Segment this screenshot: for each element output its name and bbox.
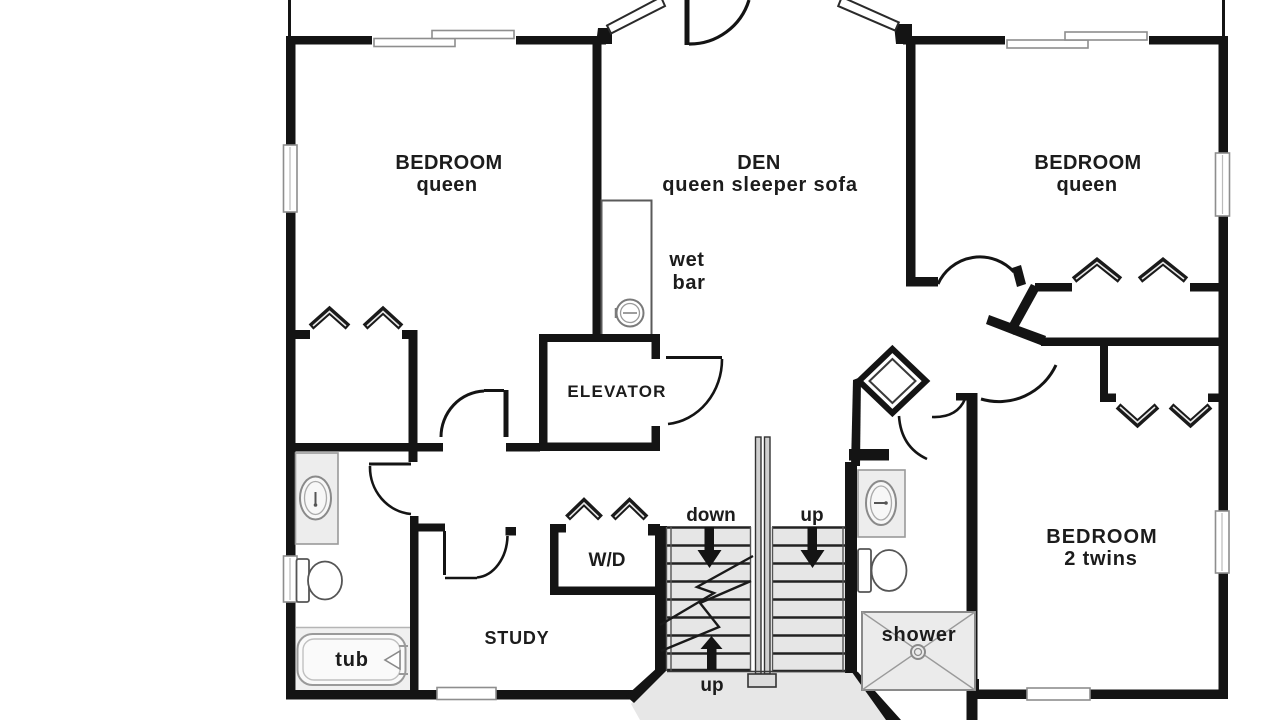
svg-text:BEDROOM: BEDROOM [395,152,502,174]
svg-text:W/D: W/D [589,550,626,571]
svg-text:queen: queen [1057,174,1118,196]
svg-text:up: up [700,675,723,696]
svg-text:ELEVATOR: ELEVATOR [567,382,666,401]
svg-text:2 twins: 2 twins [1064,548,1137,570]
svg-text:shower: shower [882,624,957,646]
svg-text:wet: wet [668,249,704,271]
svg-text:bar: bar [673,272,706,294]
svg-text:BEDROOM: BEDROOM [1034,152,1141,174]
svg-text:tub: tub [335,649,369,671]
svg-text:down: down [686,505,736,526]
svg-text:BEDROOM: BEDROOM [1046,526,1157,548]
svg-text:up: up [800,505,823,526]
svg-text:queen sleeper sofa: queen sleeper sofa [662,174,858,196]
svg-text:STUDY: STUDY [484,628,549,648]
svg-text:queen: queen [417,174,478,196]
svg-text:DEN: DEN [737,152,780,174]
